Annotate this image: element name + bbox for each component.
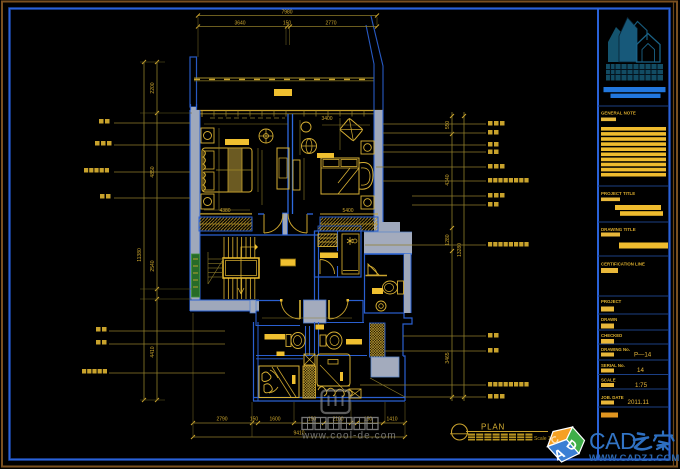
svg-text:1280: 1280 xyxy=(445,234,451,245)
svg-text:3400: 3400 xyxy=(321,116,332,122)
svg-text:3640: 3640 xyxy=(234,21,245,27)
svg-text:DRAWN: DRAWN xyxy=(601,317,617,322)
svg-text:CAD: CAD xyxy=(589,428,636,454)
svg-text:DRAWING TITLE: DRAWING TITLE xyxy=(601,227,636,232)
svg-text:2790: 2790 xyxy=(216,417,227,423)
svg-text:7980: 7980 xyxy=(281,10,292,16)
svg-text:CERTIFICATION LINE: CERTIFICATION LINE xyxy=(601,262,645,267)
svg-text:GENERAL NOTE: GENERAL NOTE xyxy=(601,111,636,116)
svg-text:DRAWING No.: DRAWING No. xyxy=(601,347,630,352)
svg-text:150: 150 xyxy=(250,417,259,423)
svg-text:2011.11: 2011.11 xyxy=(628,399,650,406)
svg-text:5400: 5400 xyxy=(342,208,353,214)
svg-text:2200: 2200 xyxy=(150,82,156,93)
svg-text:SERIAL No.: SERIAL No. xyxy=(601,363,625,368)
svg-text:11380: 11380 xyxy=(137,248,143,262)
svg-text:550: 550 xyxy=(445,121,451,130)
svg-text:1410: 1410 xyxy=(386,417,397,423)
svg-text:4410: 4410 xyxy=(150,346,156,357)
svg-text:PROJECT: PROJECT xyxy=(601,299,622,304)
svg-text:WWW.CADZJ.COM: WWW.CADZJ.COM xyxy=(589,453,680,464)
svg-text:3465: 3465 xyxy=(445,352,451,363)
svg-text:www.cool-de.com: www.cool-de.com xyxy=(301,431,397,442)
svg-text:2540: 2540 xyxy=(150,260,156,271)
svg-text:2770: 2770 xyxy=(325,21,336,27)
svg-text:SCALE: SCALE xyxy=(601,378,616,383)
svg-text:1600: 1600 xyxy=(269,417,280,423)
svg-text:JOB. DATE: JOB. DATE xyxy=(601,395,624,400)
svg-text:4340: 4340 xyxy=(445,174,451,185)
svg-text:150: 150 xyxy=(283,21,292,27)
svg-text:14: 14 xyxy=(637,367,644,374)
svg-text:P—14: P—14 xyxy=(634,352,652,359)
svg-text:CHECKED: CHECKED xyxy=(601,333,622,338)
svg-text:PLAN: PLAN xyxy=(481,423,505,432)
svg-text:1:75: 1:75 xyxy=(635,382,648,389)
svg-text:PROJECT TITLE: PROJECT TITLE xyxy=(601,191,635,196)
